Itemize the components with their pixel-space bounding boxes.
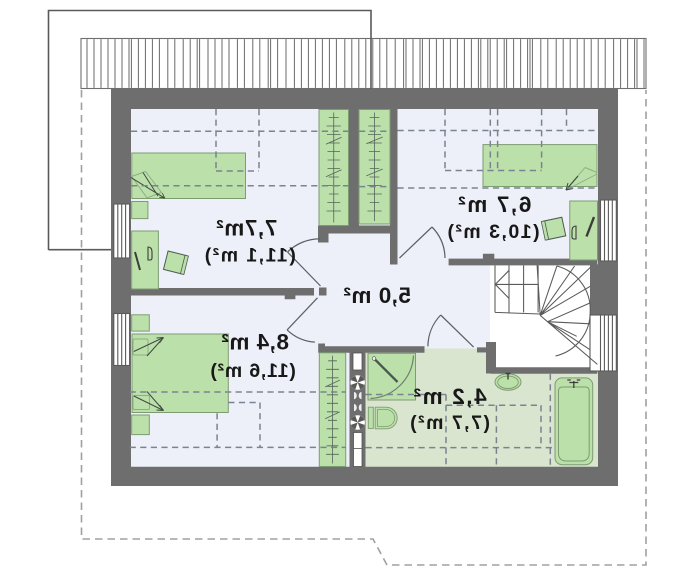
svg-text:(10,3 m²): (10,3 m²) [446,221,540,243]
svg-text:8,4 m²: 8,4 m² [221,330,289,355]
svg-text:4,2 m²: 4,2 m² [412,384,487,409]
svg-text:(11,6 m²): (11,6 m²) [210,360,296,382]
svg-text:6,7 m²: 6,7 m² [457,192,532,217]
svg-text:5,0 m²: 5,0 m² [343,283,411,308]
svg-text:(11,1 m²): (11,1 m²) [203,245,296,267]
svg-text:7,7m²: 7,7m² [216,215,278,240]
svg-text:(7,7 m²): (7,7 m²) [409,412,490,434]
